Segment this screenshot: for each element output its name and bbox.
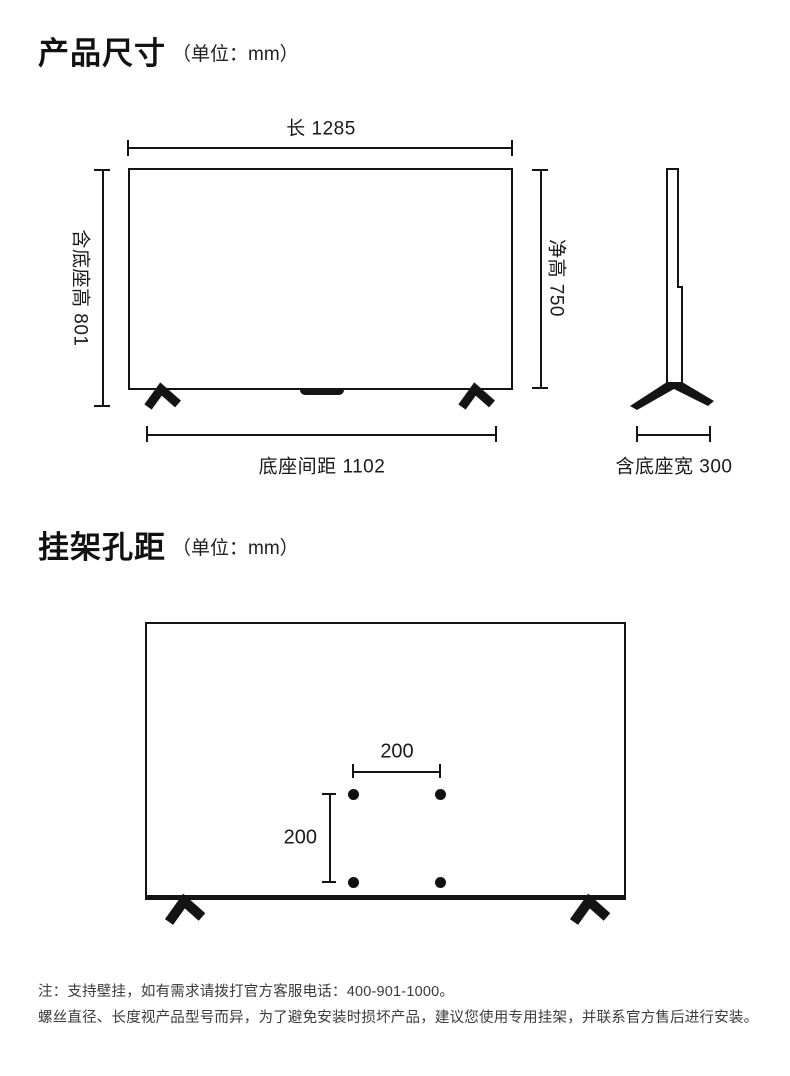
dim-label-height-with-base: 含底座高 801 (69, 230, 96, 347)
dim-label-length: 长 1285 (286, 114, 356, 141)
dim-tick (495, 426, 497, 442)
mount-hole-top-left (348, 789, 359, 800)
unit-label: （单位：mm） (172, 39, 299, 66)
dim-tick (511, 140, 513, 156)
mount-hole-bottom-left (348, 877, 359, 888)
section-product-size-title: 产品尺寸 （单位：mm） (38, 28, 299, 73)
dim-label-width-with-base: 含底座宽 300 (616, 452, 733, 479)
dim-tick (322, 881, 336, 883)
dim-line-hole-spacing-vertical (329, 794, 331, 882)
dim-tick (94, 405, 110, 407)
dim-line-height-with-base (102, 170, 104, 407)
tv-front-bottom-notch (300, 388, 344, 395)
tv-back-right-foot (568, 896, 612, 926)
tv-back-left-foot (163, 896, 207, 926)
dim-tick (322, 793, 336, 795)
dim-line-length (128, 147, 513, 149)
section-mount-holes-title: 挂架孔距 （单位：mm） (38, 522, 299, 567)
dim-tick (532, 169, 548, 171)
dim-label-hole-spacing-vertical: 200 (284, 827, 317, 850)
dim-tick (127, 140, 129, 156)
dim-line-width-with-base (637, 434, 711, 436)
page: 产品尺寸 （单位：mm） 长 1285 含底座高 801 净高 750 底座间距… (0, 0, 790, 1076)
dim-line-base-distance (147, 434, 497, 436)
tv-front-right-foot (457, 384, 497, 410)
mount-hole-top-right (435, 789, 446, 800)
tv-front-outline (128, 168, 513, 390)
dim-tick (146, 426, 148, 442)
tv-front-left-foot (143, 384, 183, 410)
tv-side-foot (630, 382, 714, 410)
dim-tick (439, 764, 441, 778)
section-title: 挂架孔距 (38, 522, 166, 567)
dim-tick (94, 169, 110, 171)
dim-line-net-height (540, 170, 542, 389)
dim-tick (352, 764, 354, 778)
unit-label: （单位：mm） (172, 533, 299, 560)
dim-line-hole-spacing-horizontal (353, 771, 440, 773)
dim-tick (636, 426, 638, 442)
tv-side-outline (618, 158, 722, 410)
dim-label-base-distance: 底座间距 1102 (259, 452, 386, 479)
footer-note-line1: 注：支持壁挂，如有需求请拨打官方客服电话：400-901-1000。 (38, 980, 454, 1001)
dim-tick (532, 387, 548, 389)
footer-note-line2: 螺丝直径、长度视产品型号而异，为了避免安装时损坏产品，建议您使用专用挂架，并联系… (38, 1006, 758, 1027)
dim-tick (709, 426, 711, 442)
mount-hole-bottom-right (435, 877, 446, 888)
page-title: 产品尺寸 (38, 28, 166, 73)
dim-label-hole-spacing-horizontal: 200 (380, 741, 413, 764)
dim-label-net-height: 净高 750 (545, 239, 572, 317)
